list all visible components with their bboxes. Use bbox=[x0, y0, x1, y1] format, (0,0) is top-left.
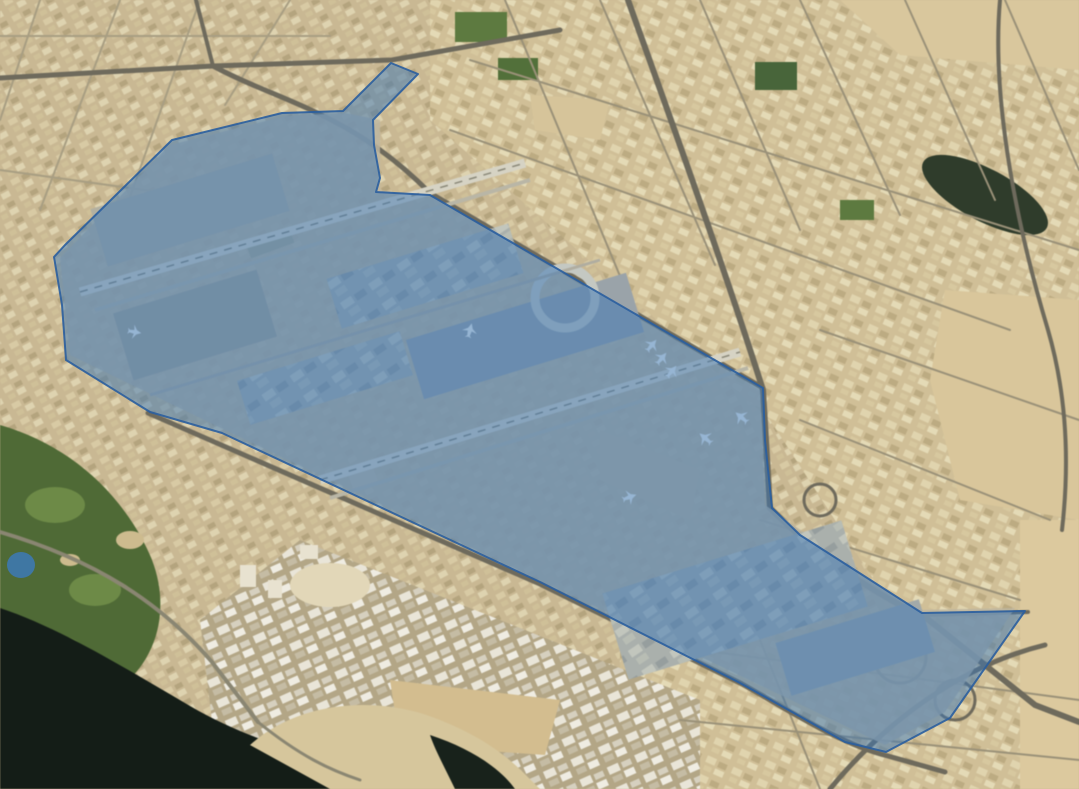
map-viewport[interactable] bbox=[0, 0, 1079, 789]
dot-marker-overlay[interactable] bbox=[7, 552, 35, 578]
map-canvas bbox=[0, 0, 1079, 789]
